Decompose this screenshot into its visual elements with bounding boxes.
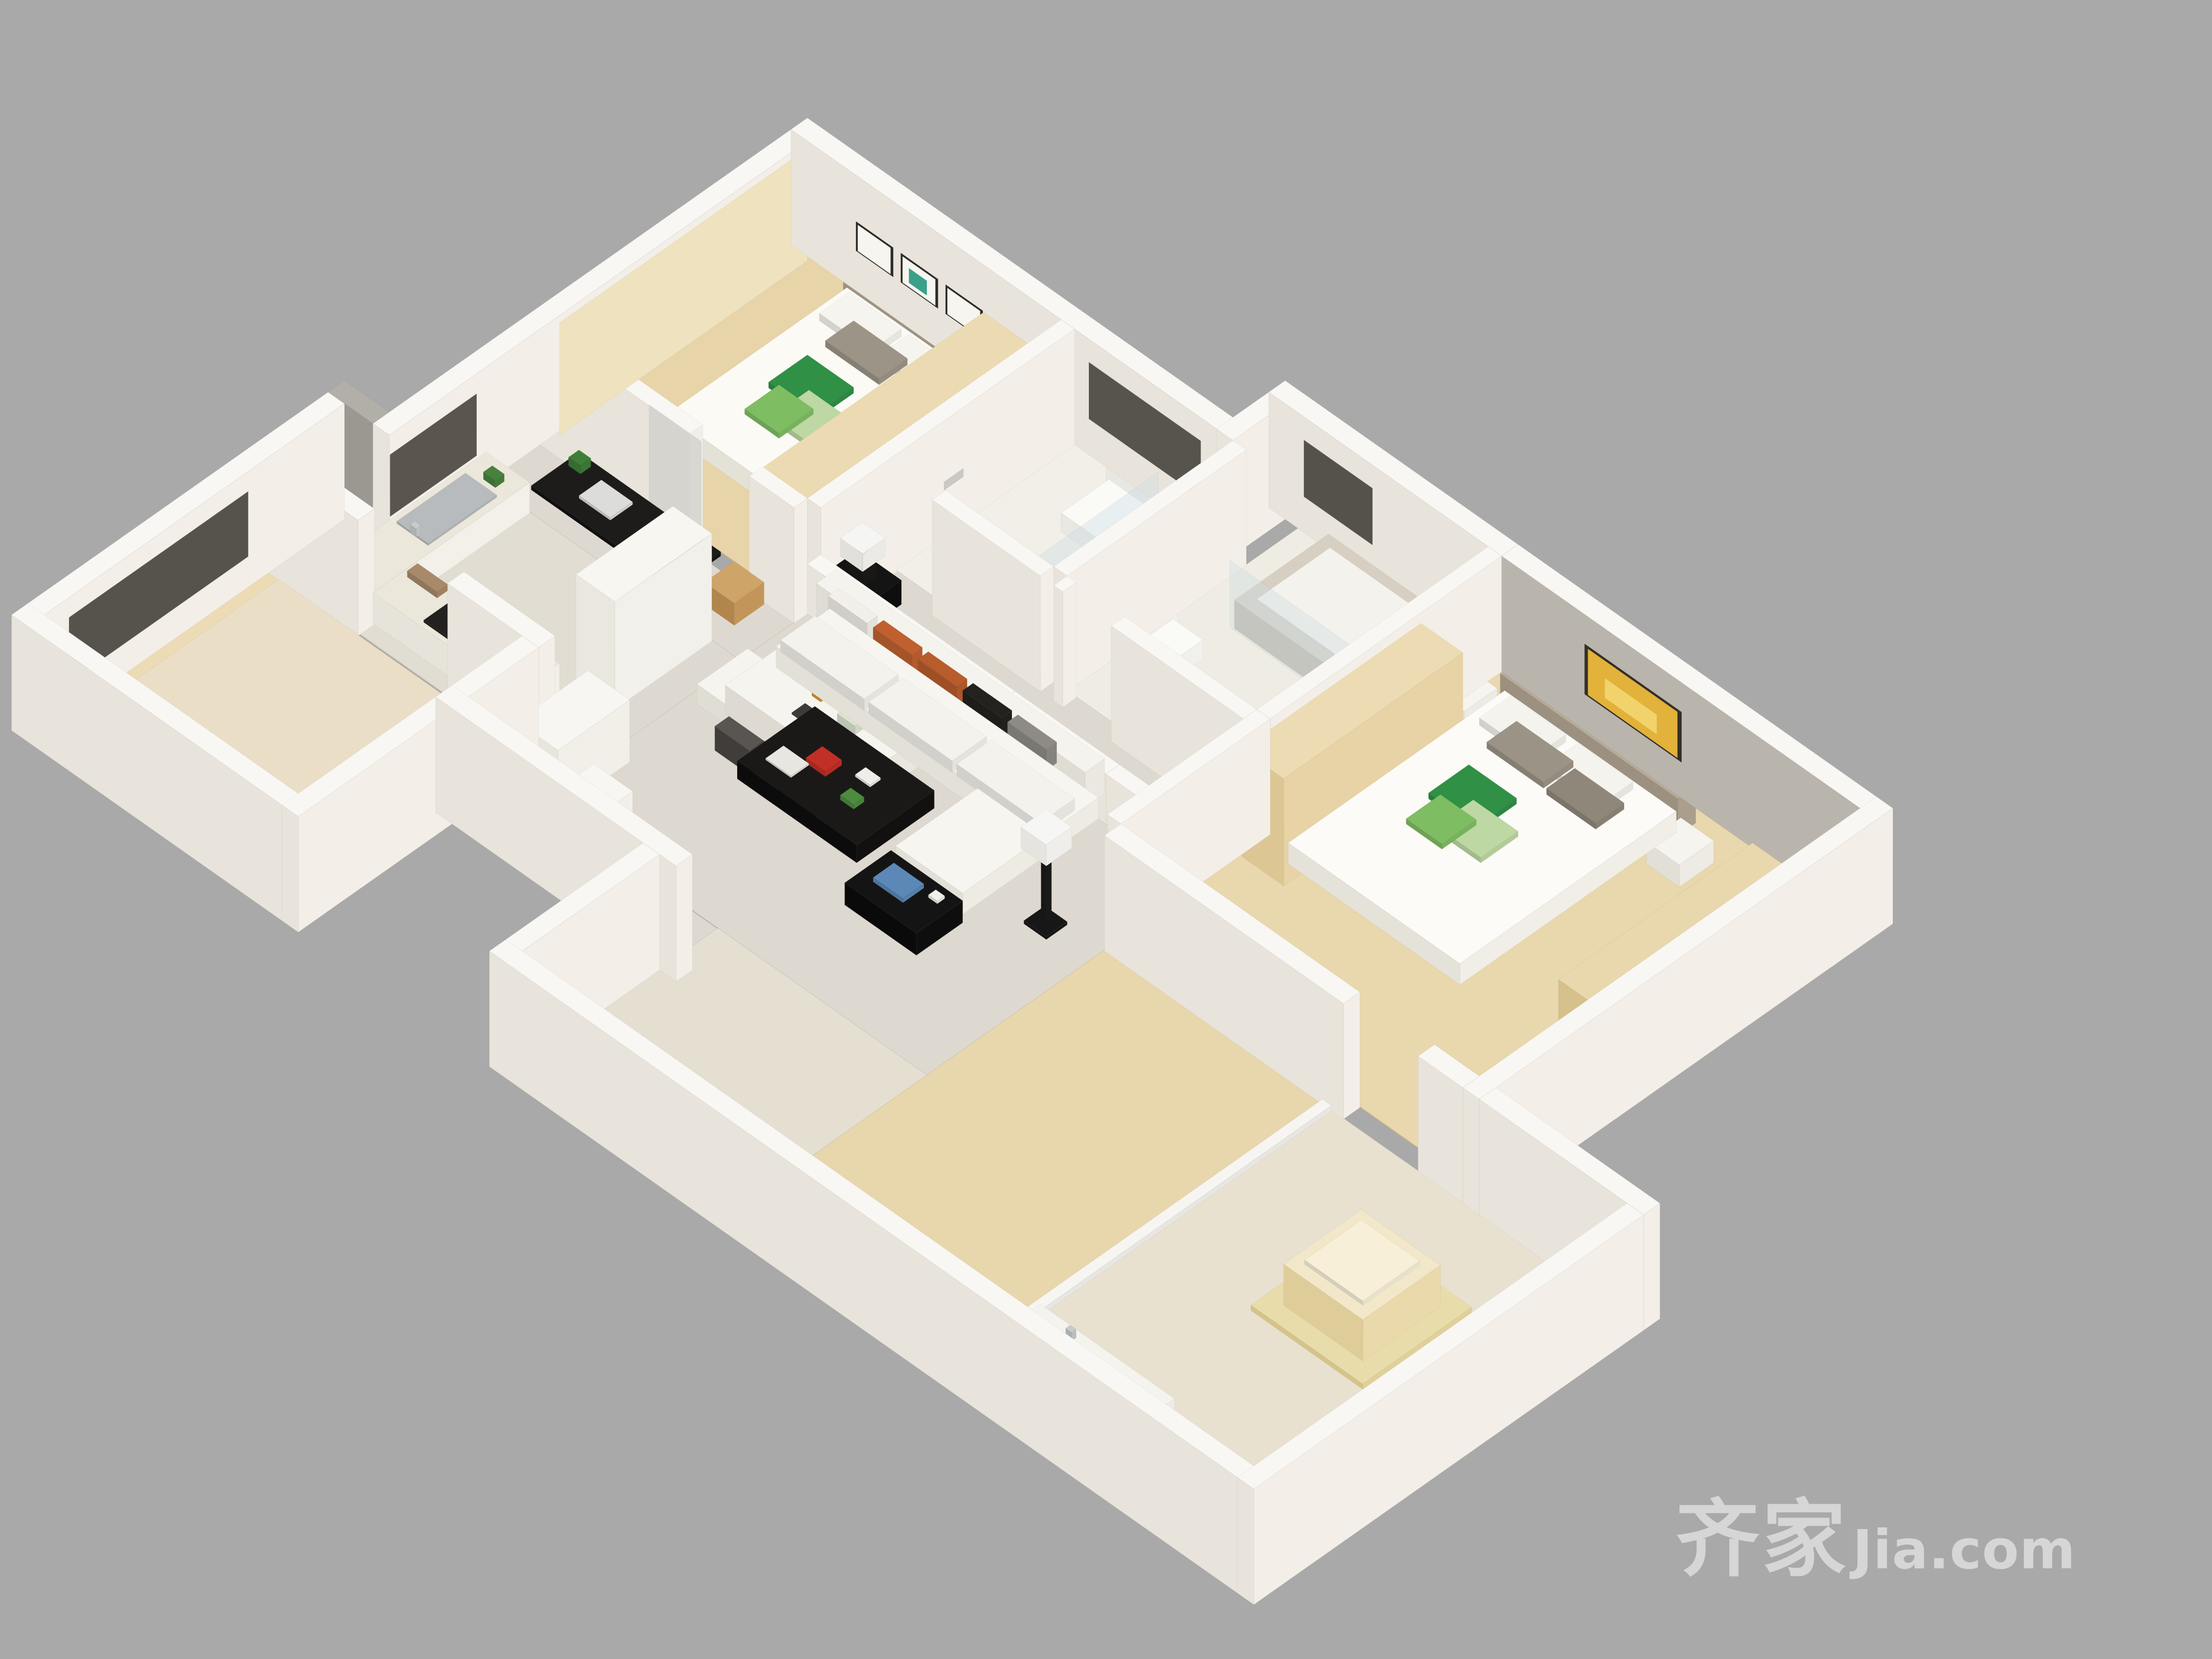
- watermark-en-logo: Jia.com: [1853, 1519, 2076, 1581]
- watermark-cn-logo: 齐家: [1676, 1471, 1848, 1593]
- floorplan-3d-scene: [0, 0, 2212, 1659]
- watermark: 齐家 Jia.com: [1676, 1471, 2076, 1593]
- floorplan-render-stage: 齐家 Jia.com: [0, 0, 2212, 1659]
- bathroom2-south-wall-a: [1054, 576, 1077, 708]
